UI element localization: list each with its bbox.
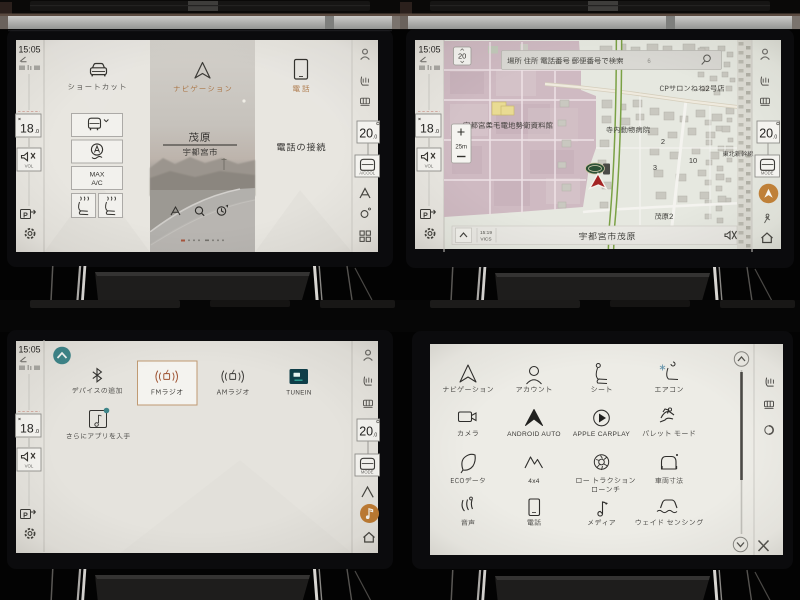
svg-text:20: 20 xyxy=(759,127,773,141)
svg-text:.0: .0 xyxy=(773,135,777,141)
svg-text:20: 20 xyxy=(359,127,373,141)
svg-text:MODE: MODE xyxy=(761,171,774,176)
svg-text:.0: .0 xyxy=(373,135,377,141)
svg-text:A/COOL: A/COOL xyxy=(359,171,375,176)
